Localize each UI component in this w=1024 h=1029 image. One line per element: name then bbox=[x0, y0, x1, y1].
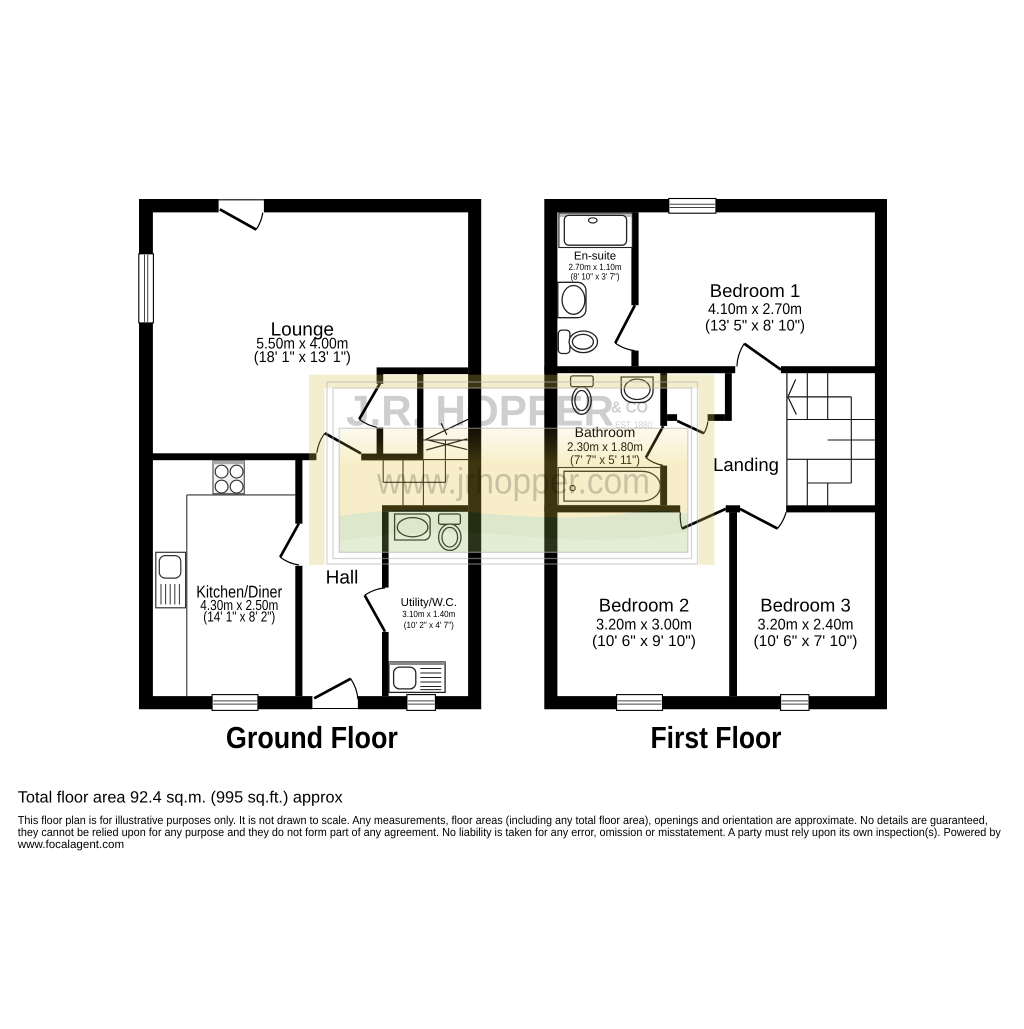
svg-text:First Floor: First Floor bbox=[651, 721, 782, 755]
svg-text:(10' 2" x 4' 7"): (10' 2" x 4' 7") bbox=[404, 620, 454, 630]
svg-text:EST. 1880: EST. 1880 bbox=[615, 420, 652, 431]
svg-text:Bedroom 3: Bedroom 3 bbox=[760, 594, 851, 615]
svg-text:(13' 5" x 8' 10"): (13' 5" x 8' 10") bbox=[705, 318, 805, 335]
svg-text:(10' 6" x 9' 10"): (10' 6" x 9' 10") bbox=[592, 633, 696, 650]
svg-text:(14' 1" x 8' 2"): (14' 1" x 8' 2") bbox=[203, 610, 275, 626]
svg-text:J.R. HOPPER: J.R. HOPPER bbox=[346, 388, 614, 436]
svg-text:2.70m x 1.10m: 2.70m x 1.10m bbox=[569, 262, 622, 272]
svg-text:(8' 10" x 3' 7"): (8' 10" x 3' 7") bbox=[571, 272, 620, 282]
svg-text:www.focalagent.com: www.focalagent.com bbox=[17, 838, 124, 851]
svg-text:they cannot be relied upon for: they cannot be relied upon for any purpo… bbox=[18, 826, 1001, 839]
svg-text:Hall: Hall bbox=[326, 567, 359, 588]
svg-text:Landing: Landing bbox=[713, 454, 779, 475]
svg-text:Ground Floor: Ground Floor bbox=[226, 721, 398, 755]
svg-text:Bedroom 1: Bedroom 1 bbox=[710, 280, 801, 301]
svg-text:Bedroom 2: Bedroom 2 bbox=[599, 594, 690, 615]
svg-text:www.jrhopper.com: www.jrhopper.com bbox=[376, 461, 650, 502]
svg-text:Total floor area 92.4 sq.m. (9: Total floor area 92.4 sq.m. (995 sq.ft.)… bbox=[18, 789, 343, 807]
svg-text:(18' 1" x 13' 1"): (18' 1" x 13' 1") bbox=[254, 349, 351, 366]
svg-text:& CO: & CO bbox=[611, 400, 648, 417]
svg-text:3.10m x 1.40m: 3.10m x 1.40m bbox=[402, 609, 455, 619]
svg-text:4.10m x 2.70m: 4.10m x 2.70m bbox=[708, 301, 802, 318]
svg-text:3.20m x 2.40m: 3.20m x 2.40m bbox=[758, 617, 854, 634]
svg-text:3.20m x 3.00m: 3.20m x 3.00m bbox=[596, 617, 692, 634]
svg-text:Utility/W.C.: Utility/W.C. bbox=[401, 597, 457, 609]
svg-text:(10' 6" x 7' 10"): (10' 6" x 7' 10") bbox=[754, 633, 858, 650]
svg-text:En-suite: En-suite bbox=[574, 251, 616, 263]
